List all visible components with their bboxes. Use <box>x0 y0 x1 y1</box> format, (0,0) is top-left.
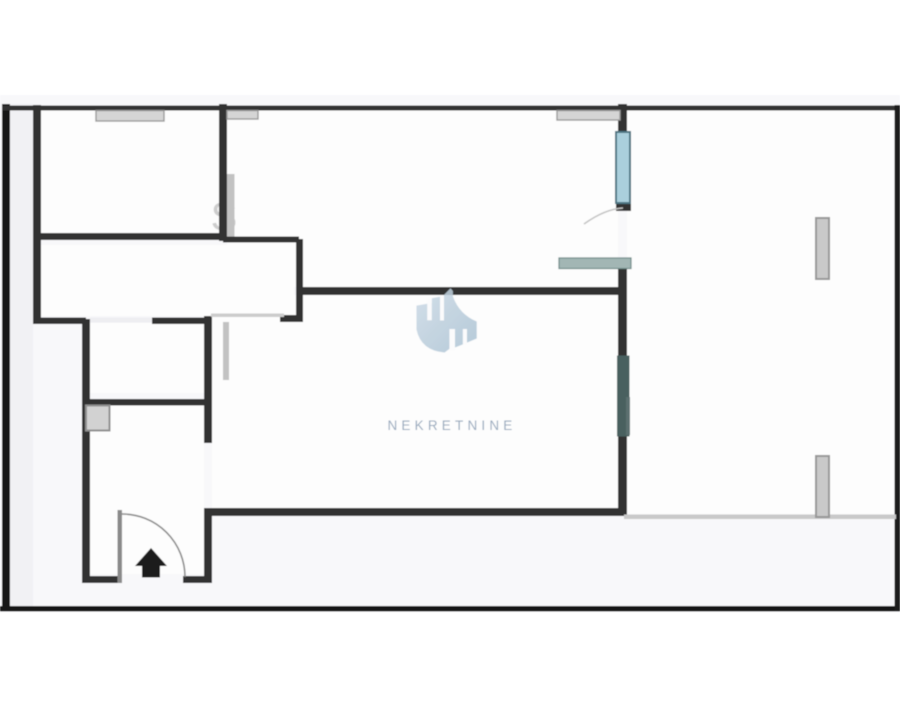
svg-text:NEKRETNINE: NEKRETNINE <box>387 418 516 433</box>
